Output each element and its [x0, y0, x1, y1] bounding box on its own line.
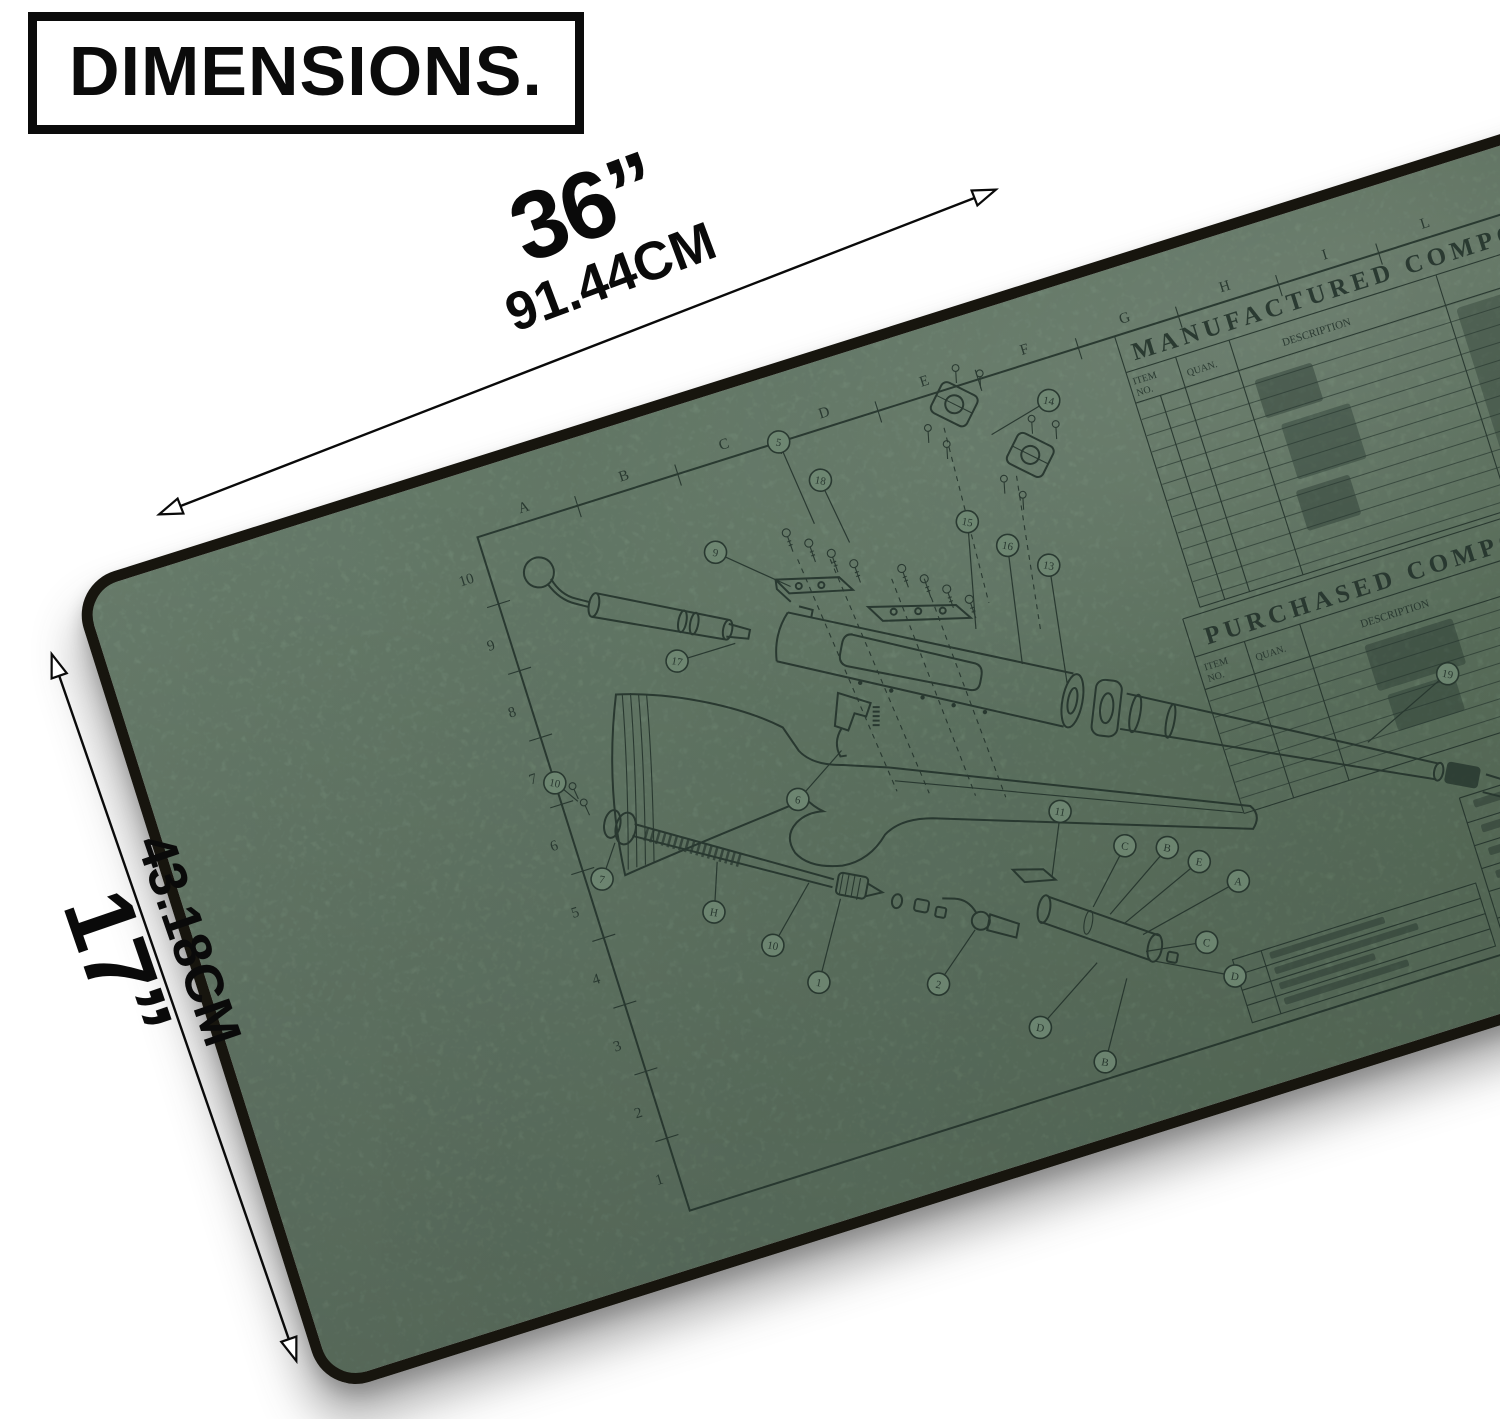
page-title: DIMENSIONS.	[69, 31, 543, 111]
svg-text:11: 11	[1054, 806, 1067, 820]
blueprint-print: 10 9 8 7 6 5 4 3 2 1 A B	[84, 64, 1500, 1382]
width-dimension-label: 36” 91.44CM	[381, 95, 808, 376]
product-dimensions-image: 10 9 8 7 6 5 4 3 2 1 A B	[0, 0, 1500, 1419]
cleaning-mat: 10 9 8 7 6 5 4 3 2 1 A B	[70, 50, 1500, 1396]
dimensions-header-box: DIMENSIONS.	[28, 12, 584, 134]
